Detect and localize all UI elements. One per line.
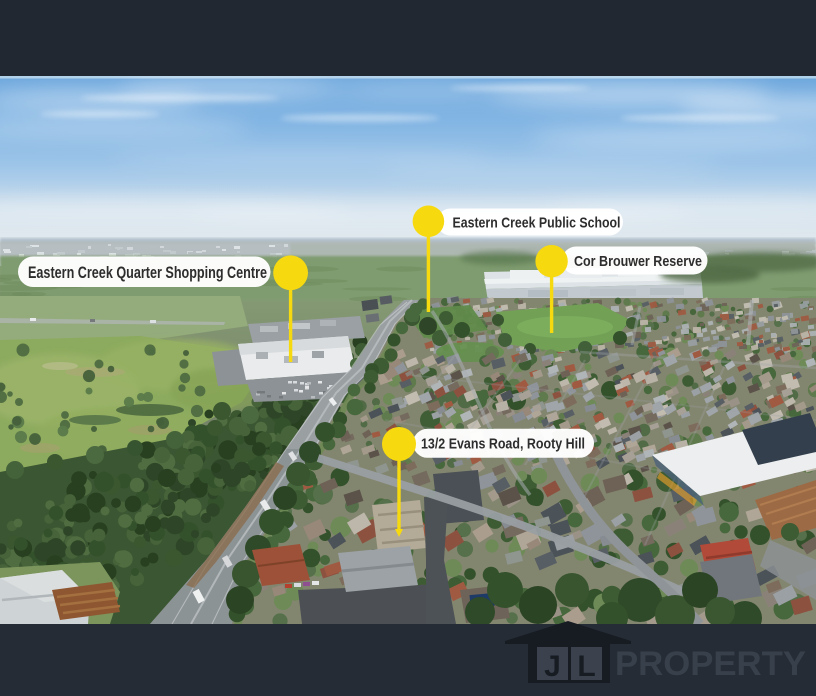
svg-text:PROPERTY: PROPERTY: [615, 645, 806, 683]
svg-text:Eastern Creek Public School: Eastern Creek Public School: [453, 215, 621, 231]
svg-text:Eastern Creek Quarter Shopping: Eastern Creek Quarter Shopping Centre: [28, 263, 267, 282]
svg-text:J: J: [544, 650, 561, 683]
svg-text:L: L: [577, 650, 595, 683]
svg-text:Cor Brouwer Reserve: Cor Brouwer Reserve: [574, 254, 702, 270]
svg-text:13/2 Evans Road, Rooty Hill: 13/2 Evans Road, Rooty Hill: [421, 437, 585, 453]
